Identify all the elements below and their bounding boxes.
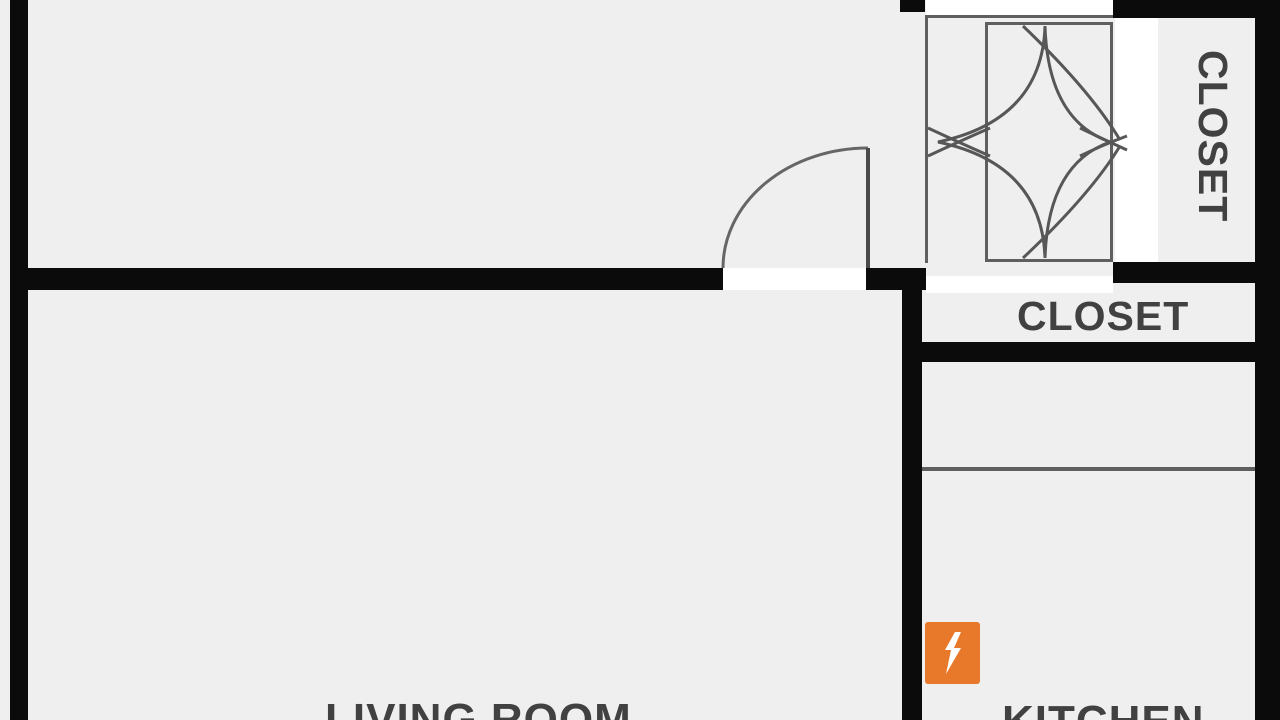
- wall-living-kitchen-divider: [902, 268, 922, 720]
- top-opening-strip: [926, 0, 1113, 15]
- closet-niche-top-line: [926, 15, 1113, 18]
- kitchen-label: KITCHEN: [1002, 697, 1205, 720]
- closet-hall-label: CLOSET: [1017, 293, 1189, 340]
- closet-door-strip: [1115, 18, 1158, 263]
- living-room-label: LIVING ROOM: [325, 695, 632, 720]
- wall-bedroom-living-divider: [10, 268, 723, 290]
- closet-right-label: CLOSET: [1189, 50, 1237, 210]
- hall-closet-opening: [926, 276, 1113, 293]
- wall-below-hall-closet: [922, 342, 1257, 362]
- kitchen-counter-line: [922, 467, 1255, 471]
- wall-under-closet: [1113, 262, 1257, 283]
- floor-plan: CLOSET CLOSET LIVING ROOM KITCHEN: [0, 0, 1280, 720]
- wall-left: [10, 0, 28, 720]
- wall-right: [1255, 0, 1280, 720]
- bifold-closet-box: [985, 22, 1113, 262]
- wall-top-stub: [900, 0, 925, 12]
- door-opening-threshold: [723, 268, 866, 290]
- power-hotspot-marker[interactable]: [925, 622, 980, 684]
- lightning-bolt-icon: [936, 630, 970, 676]
- door-swing-arc: [723, 148, 868, 268]
- closet-niche-left-line: [925, 15, 928, 263]
